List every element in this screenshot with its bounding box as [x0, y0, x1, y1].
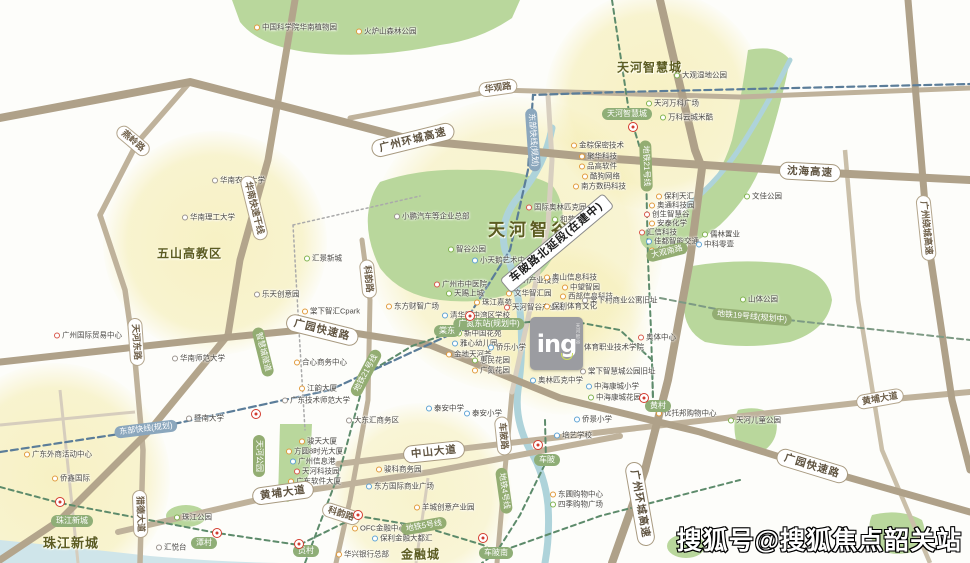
- road-label: 广园快速路: [774, 447, 850, 486]
- road-label: 科韵路: [358, 259, 377, 299]
- poi-icon: [372, 535, 378, 541]
- poi-icon: [446, 290, 452, 296]
- poi-label: 中海康城小学: [586, 381, 639, 392]
- poi-icon: [649, 220, 655, 226]
- metro-marker-icon: [628, 122, 638, 132]
- poi-text: 侨鑫国际: [60, 473, 90, 484]
- poi-label: 保利金融大都汇: [372, 533, 433, 544]
- poi-text: 文佳公园: [752, 191, 782, 202]
- poi-text: 骏科商务园: [384, 464, 422, 475]
- poi-label: 国际奥林匹克园: [526, 202, 587, 213]
- poi-icon: [299, 438, 305, 444]
- road-label: 广州环城高速: [624, 461, 657, 548]
- poi-icon: [550, 501, 556, 507]
- poi-icon: [696, 241, 702, 247]
- road-label: 燕岭路: [113, 123, 153, 160]
- poi-icon: [386, 303, 392, 309]
- metro-marker-icon: [478, 533, 488, 543]
- poi-icon: [646, 100, 652, 106]
- poi-label: 华南农业大学: [212, 175, 265, 186]
- poi-icon: [560, 293, 566, 299]
- poi-icon: [552, 216, 558, 222]
- poi-icon: [54, 332, 60, 338]
- poi-icon: [504, 304, 510, 310]
- poi-label: 暨南大学: [186, 413, 224, 424]
- poi-icon: [182, 214, 188, 220]
- road-label: 广州绕城高速: [915, 194, 937, 261]
- metro-marker-icon: [533, 440, 543, 450]
- metro-marker-icon: [55, 497, 65, 507]
- area-title: 天河智慧城: [617, 59, 682, 76]
- poi-label: 中科零壹: [696, 239, 734, 250]
- poi-icon: [448, 246, 454, 252]
- poi-text: 中海康城花园: [596, 392, 641, 403]
- poi-text: 南方数码科技: [581, 181, 626, 192]
- poi-icon: [550, 491, 556, 497]
- poi-icon: [394, 213, 400, 219]
- poi-label: 华南理工大学: [182, 212, 235, 223]
- metro-station-label: 广氮东站(规划中): [453, 318, 524, 330]
- location-map[interactable]: 中国科学院华南植物园火炉山森林公园华南农业大学华南理工大学大观湿地公园天河万科广…: [0, 0, 970, 563]
- poi-text: 优托邦购物中心: [664, 408, 717, 419]
- poi-label: 侨鑫国际: [52, 473, 90, 484]
- poi-label: 文佳公园: [744, 191, 782, 202]
- poi-text: 中科零壹: [704, 239, 734, 250]
- poi-icon: [52, 475, 58, 481]
- road-label: 黄埔大道: [251, 480, 315, 507]
- poi-label: 万科云城米酷: [660, 112, 713, 123]
- poi-icon: [452, 340, 458, 346]
- poi-label: 汇景新城: [304, 253, 342, 264]
- poi-icon: [254, 291, 260, 297]
- poi-label: 山体公园: [740, 294, 778, 305]
- poi-icon: [639, 229, 645, 235]
- road-label: 车陂路: [493, 416, 512, 456]
- poi-text: 棠下智汇Cpark: [310, 306, 360, 317]
- poi-text: 国际奥林匹克园: [534, 202, 587, 213]
- metro-station-label: 珠江新城: [51, 515, 93, 527]
- poi-icon: [740, 296, 746, 302]
- poi-text: 培艺学校: [562, 430, 592, 441]
- poi-text: 山体公园: [748, 294, 778, 305]
- poi-icon: [346, 417, 352, 423]
- poi-text: 万科云城米酷: [668, 112, 713, 123]
- poi-icon: [294, 359, 300, 365]
- poi-icon: [660, 114, 666, 120]
- poi-icon: [356, 28, 362, 34]
- sohu-watermark: 搜狐号@搜狐焦点韶关站: [677, 521, 962, 557]
- metro-marker-icon: [294, 539, 304, 549]
- poi-text: 珠江公园: [182, 512, 212, 523]
- poi-label: 江韵大厦: [299, 383, 337, 394]
- poi-text: 棠下智慧城公园旧址: [588, 366, 656, 377]
- poi-label: 侨乐小学: [488, 342, 526, 353]
- poi-icon: [571, 142, 577, 148]
- poi-icon: [366, 483, 372, 489]
- poi-icon: [442, 312, 448, 318]
- poi-icon: [472, 257, 478, 263]
- road-label: 广园快速路: [284, 312, 360, 347]
- poi-icon: [526, 204, 532, 210]
- poi-icon: [254, 24, 260, 30]
- poi-icon: [434, 281, 440, 287]
- road-label: 华观路: [478, 78, 519, 99]
- poi-text: 广东技术师范大学: [290, 395, 350, 406]
- transit-label: 地铁4号线: [495, 467, 513, 515]
- poi-text: 侨乐小学: [496, 342, 526, 353]
- poi-icon: [573, 183, 579, 189]
- transit-label: 东部快线(规划): [114, 419, 178, 439]
- road-label: 广州环城高速: [370, 121, 457, 159]
- poi-icon: [156, 544, 162, 550]
- poi-text: 广氮花园: [480, 365, 510, 376]
- poi-icon: [582, 173, 588, 179]
- poi-icon: [554, 432, 560, 438]
- poi-icon: [472, 367, 478, 373]
- poi-icon: [172, 355, 178, 361]
- poi-label: 南方数码科技: [573, 181, 626, 192]
- poi-icon: [212, 177, 218, 183]
- poi-label: 大观湿地公园: [674, 70, 727, 81]
- poi-label: 羊城创意产业园: [414, 502, 475, 513]
- poi-text: 棠下村商业公寓旧址: [590, 295, 658, 306]
- poi-text: 羊城创意产业园: [422, 502, 475, 513]
- poi-icon: [302, 308, 308, 314]
- poi-label: 天河万科广场: [646, 98, 699, 109]
- poi-label: 广氮花园: [472, 365, 510, 376]
- poi-icon: [646, 238, 652, 244]
- poi-label: 四季购物广场: [550, 499, 603, 510]
- poi-icon: [579, 153, 585, 159]
- poi-label: 华兴银行总部: [336, 549, 389, 560]
- poi-text: 奥体中心: [646, 332, 676, 343]
- poi-text: 合心商务中心: [302, 357, 347, 368]
- poi-icon: [174, 514, 180, 520]
- transit-label: 智慧城隧道: [251, 326, 275, 377]
- poi-label: 泰安中学: [426, 403, 464, 414]
- poi-text: 金棕保密技术: [579, 140, 624, 151]
- poi-label: 广州国际贸易中心: [54, 330, 122, 341]
- metro-marker-icon: [212, 528, 222, 538]
- poi-icon: [656, 193, 662, 199]
- road-label: 天河东路: [127, 318, 146, 367]
- poi-icon: [472, 357, 478, 363]
- poi-label: 乐天创意园: [254, 289, 300, 300]
- transit-label: 地铁19号线(规划中): [712, 308, 793, 327]
- poi-label: 广东技术师范大学: [282, 395, 350, 406]
- poi-icon: [582, 297, 588, 303]
- ing-project-logo: ing 天河智谷: [530, 317, 583, 370]
- poi-label: 奥林匹克中学: [530, 375, 583, 386]
- poi-label: 棠下村商业公寓旧址: [582, 295, 658, 306]
- poi-icon: [426, 405, 432, 411]
- poi-text: 文华智汇园: [514, 288, 552, 299]
- road-label: 中山大道: [402, 440, 466, 465]
- poi-text: 中国科学院华南植物园: [262, 22, 337, 33]
- metro-marker-icon: [639, 393, 649, 403]
- poi-label: 侨景小学: [574, 414, 612, 425]
- poi-label: 棠下智慧城公园旧址: [580, 366, 656, 377]
- metro-marker-icon: [353, 510, 363, 520]
- poi-label: 东方国际商业广场: [366, 481, 434, 492]
- poi-label: 金棕保密技术: [571, 140, 624, 151]
- poi-text: 智谷公园: [456, 244, 486, 255]
- poi-text: 大观湿地公园: [682, 70, 727, 81]
- poi-icon: [286, 448, 292, 454]
- poi-text: 中海康城小学: [594, 381, 639, 392]
- poi-text: 江韵大厦: [307, 383, 337, 394]
- poi-icon: [376, 466, 382, 472]
- poi-label: 汇悦台: [156, 542, 187, 553]
- metro-station-label: 车陂: [534, 454, 560, 466]
- poi-icon: [282, 397, 288, 403]
- area-title: 五山高教区: [157, 245, 222, 262]
- poi-text: 小鹏汽车等企业总部: [402, 211, 470, 222]
- poi-icon: [674, 72, 680, 78]
- poi-text: 泰安中学: [434, 403, 464, 414]
- poi-text: 汇悦台: [164, 542, 187, 553]
- poi-text: 华南师范大学: [180, 353, 225, 364]
- poi-icon: [649, 202, 655, 208]
- poi-text: 奥林匹克中学: [538, 375, 583, 386]
- poi-icon: [304, 255, 310, 261]
- road-label: 沈海高速: [779, 161, 842, 182]
- metro-marker-icon: [465, 311, 475, 321]
- poi-text: 火炉山森林公园: [364, 26, 417, 37]
- area-title: 金融城: [401, 546, 440, 563]
- poi-icon: [702, 231, 708, 237]
- poi-icon: [352, 525, 358, 531]
- poi-text: 华兴银行总部: [344, 549, 389, 560]
- metro-station-label: 车陂南: [479, 547, 513, 559]
- poi-text: 汇景新城: [312, 253, 342, 264]
- poi-label: 天河儿童公园: [728, 415, 781, 426]
- poi-label: 珠江公园: [174, 512, 212, 523]
- poi-text: 侨景小学: [582, 414, 612, 425]
- poi-icon: [294, 468, 300, 474]
- poi-label: 中海康城花园: [588, 392, 641, 403]
- poi-text: 天河万科广场: [654, 98, 699, 109]
- poi-icon: [728, 417, 734, 423]
- poi-text: 四季购物广场: [558, 499, 603, 510]
- transit-label: 地铁21号线: [349, 348, 383, 399]
- poi-text: 天河儿童公园: [736, 415, 781, 426]
- poi-label: 培艺学校: [554, 430, 592, 441]
- poi-icon: [588, 394, 594, 400]
- poi-icon: [574, 416, 580, 422]
- poi-icon: [446, 351, 452, 357]
- poi-label: 中国科学院华南植物园: [254, 22, 337, 33]
- road-label: 黄埔大道: [855, 387, 905, 410]
- metro-marker-icon: [251, 409, 261, 419]
- poi-icon: [336, 551, 342, 557]
- poi-text: 乐天创意园: [262, 289, 300, 300]
- poi-icon: [544, 303, 550, 309]
- ing-smile-icon: [561, 353, 573, 360]
- poi-label: 火炉山森林公园: [356, 26, 417, 37]
- poi-label: 东方财智广场: [386, 301, 439, 312]
- poi-label: 智谷公园: [448, 244, 486, 255]
- map-labels: 中国科学院华南植物园火炉山森林公园华南农业大学华南理工大学大观湿地公园天河万科广…: [0, 0, 970, 563]
- poi-text: 体育职业技术学院: [584, 342, 644, 353]
- poi-icon: [186, 415, 192, 421]
- poi-label: 体育职业技术学院: [576, 342, 644, 353]
- area-title: 珠江新城: [43, 533, 99, 552]
- poi-text: 东方国际商业广场: [374, 481, 434, 492]
- poi-icon: [299, 385, 305, 391]
- transit-label: 东部快线(规划): [525, 108, 541, 172]
- ing-logo-subtext: 天河智谷: [575, 323, 581, 345]
- poi-text: 东方财智广场: [394, 301, 439, 312]
- poi-icon: [530, 377, 536, 383]
- metro-station-label: 棠东: [434, 325, 460, 337]
- poi-icon: [24, 451, 30, 457]
- poi-icon: [464, 410, 470, 416]
- poi-icon: [586, 383, 592, 389]
- transit-label: 地铁21号线: [639, 140, 653, 191]
- poi-label: 棠下智汇Cpark: [302, 306, 360, 317]
- poi-label: 奥体中心: [638, 332, 676, 343]
- poi-icon: [414, 504, 420, 510]
- poi-label: 骏科商务园: [376, 464, 422, 475]
- poi-icon: [562, 284, 568, 290]
- poi-label: 泰安小学: [464, 408, 502, 419]
- poi-icon: [638, 334, 644, 340]
- poi-icon: [474, 299, 480, 305]
- poi-label: 合心商务中心: [294, 357, 347, 368]
- poi-icon: [579, 163, 585, 169]
- metro-station-label: 黄村: [645, 400, 671, 412]
- poi-text: 华南理工大学: [190, 212, 235, 223]
- poi-label: 华南师范大学: [172, 353, 225, 364]
- poi-text: 暨南大学: [194, 413, 224, 424]
- transit-label: 天河公园: [253, 435, 265, 477]
- poi-icon: [488, 344, 494, 350]
- poi-label: 广东外商活动中心: [24, 449, 92, 460]
- poi-text: 大东汇商务区: [354, 415, 399, 426]
- poi-icon: [544, 274, 550, 280]
- poi-icon: [290, 458, 296, 464]
- poi-label: 小鹏汽车等企业总部: [394, 211, 470, 222]
- metro-station-label: 潭村: [191, 537, 217, 549]
- poi-text: 广东外商活动中心: [32, 449, 92, 460]
- poi-icon: [644, 211, 650, 217]
- road-label: 猎德大道: [132, 490, 149, 539]
- poi-label: 大东汇商务区: [346, 415, 399, 426]
- metro-station-label: 天河智慧城: [602, 108, 652, 120]
- poi-text: 广州国际贸易中心: [62, 330, 122, 341]
- poi-icon: [744, 193, 750, 199]
